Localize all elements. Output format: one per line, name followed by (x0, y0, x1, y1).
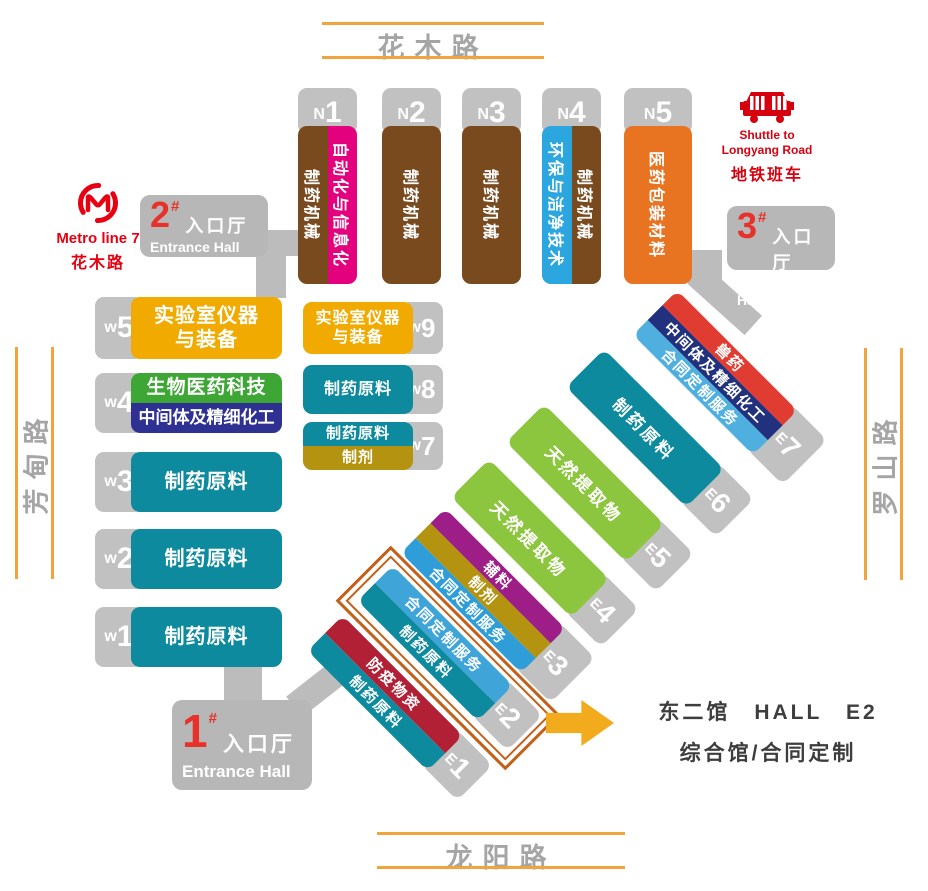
callout-text: 东二馆 HALL E2 综合馆/合同定制 (622, 692, 914, 774)
hall-n1-strip-automation[interactable]: 自动化与信息化 (328, 126, 358, 284)
hall-w8[interactable]: w8 制药原料 (303, 365, 443, 414)
hall-w1-row-api[interactable]: 制药原料 (131, 607, 282, 667)
road-line (322, 56, 544, 59)
hall-n2[interactable]: N2 制药机械 (382, 88, 441, 284)
hall-w5[interactable]: w5 实验室仪器 与装备 (95, 297, 282, 359)
hall-n3[interactable]: N3 制药机械 (462, 88, 521, 284)
road-longyang-label: 龙阳路 (377, 836, 625, 875)
hall-w3-row-api[interactable]: 制药原料 (131, 452, 282, 512)
hall-n4[interactable]: N4 环保与洁净技术 制药机械 (542, 88, 601, 284)
callout-line2: 综合馆/合同定制 (622, 733, 914, 774)
hall-n1-strip-machinery[interactable]: 制药机械 (298, 126, 328, 284)
hall-n5-strip-packaging[interactable]: 医药包装材料 (624, 126, 692, 284)
hall-w4-row-biopharma[interactable]: 生物医药科技 (131, 373, 282, 403)
hall-w4-row-intermediates[interactable]: 中间体及精细化工 (131, 403, 282, 433)
hall-w2[interactable]: w2 制药原料 (95, 529, 282, 589)
hall-w9-row-lab[interactable]: 实验室仪器 与装备 (303, 302, 413, 354)
hall-w4[interactable]: w4 生物医药科技 中间体及精细化工 (95, 373, 282, 433)
road-line (322, 22, 544, 25)
hall-n4-strip-machinery[interactable]: 制药机械 (572, 126, 602, 284)
hall-w3[interactable]: w3 制药原料 (95, 452, 282, 512)
shuttle-label-cn: 地铁班车 (706, 161, 828, 185)
hall-w1[interactable]: w1 制药原料 (95, 607, 282, 667)
hall-n4-strip-cleantech[interactable]: 环保与洁净技术 (542, 126, 572, 284)
connector (224, 664, 262, 704)
connector (256, 254, 286, 298)
road-line (377, 866, 625, 869)
bus-icon (738, 88, 796, 128)
hall-w9[interactable]: w9 实验室仪器 与装备 (303, 302, 443, 354)
entrance-hall-2[interactable]: 2# 入口厅 Entrance Hall (140, 195, 268, 257)
shanghai-metro-logo-icon (75, 180, 121, 226)
shuttle-label-en1: Shuttle to (706, 128, 828, 143)
entrance-hall-3[interactable]: 3# 入口厅 Entrance Hall (727, 206, 835, 270)
hall-w7-row-fdf[interactable]: 制剂 (303, 446, 413, 470)
callout-arrow-icon (546, 700, 614, 746)
hall-n5[interactable]: N5 医药包装材料 (624, 88, 692, 284)
road-line (377, 832, 625, 835)
expo-floor-map: 花木路 龙阳路 芳甸路 罗山路 Metro line 7 花木路 (0, 0, 928, 891)
hall-w7[interactable]: w7 制药原料 制剂 (303, 422, 443, 470)
hall-w2-row-api[interactable]: 制药原料 (131, 529, 282, 589)
hall-n1[interactable]: N1 制药机械 自动化与信息化 (298, 88, 357, 284)
hall-w8-row-api[interactable]: 制药原料 (303, 365, 413, 414)
entrance-hall-1[interactable]: 1# 入口厅 Entrance Hall (172, 700, 312, 790)
hall-n3-strip-machinery[interactable]: 制药机械 (462, 126, 521, 284)
shuttle-label-en2: Longyang Road (706, 143, 828, 158)
hall-w5-row-lab[interactable]: 实验室仪器 与装备 (131, 297, 282, 359)
hall-n2-strip-machinery[interactable]: 制药机械 (382, 126, 441, 284)
shuttle-marker: Shuttle to Longyang Road 地铁班车 (706, 88, 828, 185)
hall-w7-row-api[interactable]: 制药原料 (303, 422, 413, 446)
callout-line1: 东二馆 HALL E2 (622, 692, 914, 733)
road-huamu-label: 花木路 (322, 26, 544, 65)
